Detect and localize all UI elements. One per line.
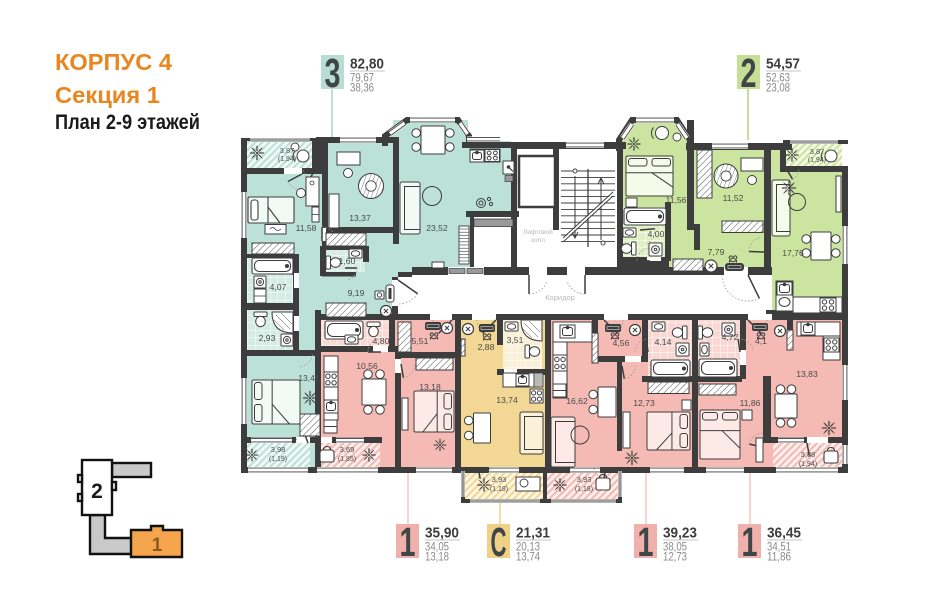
svg-text:КОРПУС 4: КОРПУС 4 — [55, 49, 172, 75]
svg-text:(1,85): (1,85) — [338, 456, 356, 463]
svg-text:2: 2 — [741, 50, 757, 96]
svg-text:13,74: 13,74 — [496, 395, 518, 405]
svg-text:3,98: 3,98 — [271, 445, 286, 454]
svg-text:12,73: 12,73 — [633, 398, 655, 408]
svg-text:38,36: 38,36 — [350, 83, 374, 95]
svg-text:Секция 1: Секция 1 — [55, 82, 160, 108]
svg-text:3,69: 3,69 — [340, 445, 355, 454]
svg-text:39,23: 39,23 — [663, 526, 697, 542]
svg-text:(1,18): (1,18) — [490, 486, 508, 493]
svg-text:холл: холл — [531, 237, 545, 244]
svg-text:21,31: 21,31 — [516, 526, 550, 542]
svg-text:5,51: 5,51 — [412, 336, 429, 346]
svg-text:4,56: 4,56 — [613, 338, 630, 348]
svg-text:(1,18): (1,18) — [575, 486, 593, 493]
svg-text:1: 1 — [742, 519, 758, 565]
svg-text:11,58: 11,58 — [296, 223, 317, 233]
svg-text:1: 1 — [152, 535, 163, 556]
svg-text:(1,94): (1,94) — [808, 157, 826, 164]
svg-text:Коридор: Коридор — [545, 293, 575, 302]
svg-text:11,86: 11,86 — [767, 552, 791, 564]
svg-text:2: 2 — [91, 480, 103, 503]
svg-text:Лифтовой: Лифтовой — [523, 228, 553, 236]
svg-text:2,88: 2,88 — [478, 342, 495, 352]
svg-text:17,76: 17,76 — [782, 248, 804, 258]
svg-text:13,18: 13,18 — [419, 382, 441, 392]
svg-text:С: С — [491, 519, 507, 565]
svg-text:36,45: 36,45 — [767, 526, 801, 542]
svg-text:9,19: 9,19 — [348, 288, 365, 298]
svg-text:3,87: 3,87 — [810, 147, 825, 156]
svg-text:10,56: 10,56 — [356, 361, 378, 371]
svg-text:4,14: 4,14 — [655, 337, 672, 347]
svg-text:1,60: 1,60 — [339, 256, 356, 266]
svg-text:11,86: 11,86 — [740, 398, 761, 408]
svg-text:13,18: 13,18 — [425, 552, 449, 564]
svg-text:1: 1 — [400, 519, 416, 565]
svg-text:23,08: 23,08 — [766, 83, 790, 95]
svg-text:13,83: 13,83 — [796, 369, 818, 379]
svg-text:2,93: 2,93 — [259, 333, 276, 343]
svg-text:7,79: 7,79 — [708, 247, 725, 257]
svg-text:1: 1 — [638, 519, 654, 565]
svg-text:13,74: 13,74 — [516, 552, 541, 564]
svg-text:(1,19): (1,19) — [269, 456, 287, 463]
svg-text:11,52: 11,52 — [723, 193, 744, 203]
svg-text:4,80: 4,80 — [373, 336, 390, 346]
svg-text:3: 3 — [325, 50, 341, 96]
svg-text:3,93: 3,93 — [492, 475, 507, 484]
svg-text:4,1: 4,1 — [755, 336, 767, 346]
svg-text:4,07: 4,07 — [270, 282, 287, 292]
svg-text:(1,94): (1,94) — [278, 156, 296, 163]
svg-text:23,52: 23,52 — [426, 223, 448, 233]
svg-text:12,73: 12,73 — [663, 552, 687, 564]
svg-text:(1,94): (1,94) — [799, 461, 817, 468]
svg-text:3,87: 3,87 — [280, 146, 295, 155]
svg-text:План 2-9 этажей: План 2-9 этажей — [55, 111, 200, 134]
svg-text:11,56: 11,56 — [666, 195, 687, 205]
svg-text:54,57: 54,57 — [766, 57, 800, 73]
svg-text:82,80: 82,80 — [350, 57, 384, 73]
svg-text:13,41: 13,41 — [298, 373, 320, 383]
svg-text:3,51: 3,51 — [507, 335, 524, 345]
svg-text:4,00: 4,00 — [648, 229, 665, 239]
svg-text:13,37: 13,37 — [349, 213, 371, 223]
svg-text:3,93: 3,93 — [577, 475, 592, 484]
svg-text:3,88: 3,88 — [801, 450, 816, 459]
svg-text:4,72: 4,72 — [722, 332, 739, 342]
svg-text:35,90: 35,90 — [425, 526, 459, 542]
svg-text:16,62: 16,62 — [566, 396, 588, 406]
